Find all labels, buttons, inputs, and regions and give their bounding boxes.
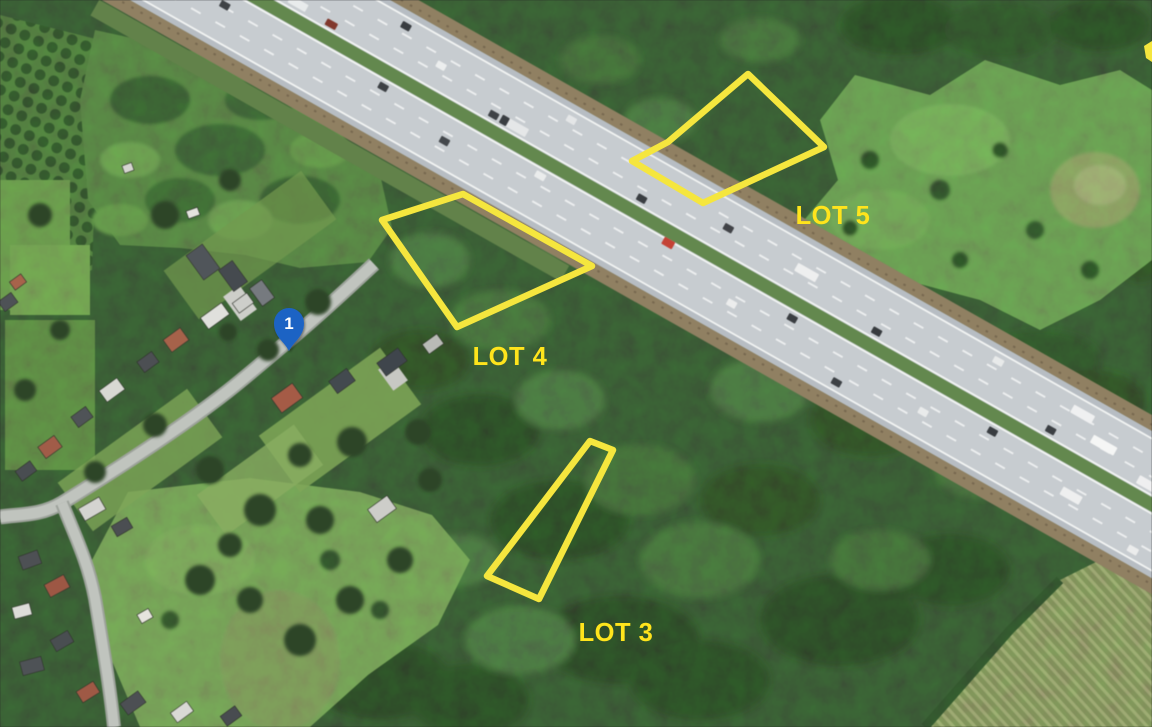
lot-overlay-layer: LOT 5LOT 4LOT 31 xyxy=(0,0,1152,727)
satellite-map-view: LOT 5LOT 4LOT 31 xyxy=(0,0,1152,727)
lot-5-label: LOT 5 xyxy=(796,202,871,230)
edge-yellow-fragment xyxy=(1144,41,1152,62)
map-marker-1[interactable]: 1 xyxy=(274,308,304,351)
lot-5-boundary[interactable] xyxy=(632,74,824,203)
lot-4-boundary[interactable] xyxy=(382,194,592,327)
marker-number: 1 xyxy=(284,314,293,333)
lot-4-label: LOT 4 xyxy=(473,343,548,371)
lot-3-boundary[interactable] xyxy=(487,441,613,599)
lot-3-label: LOT 3 xyxy=(579,619,654,647)
